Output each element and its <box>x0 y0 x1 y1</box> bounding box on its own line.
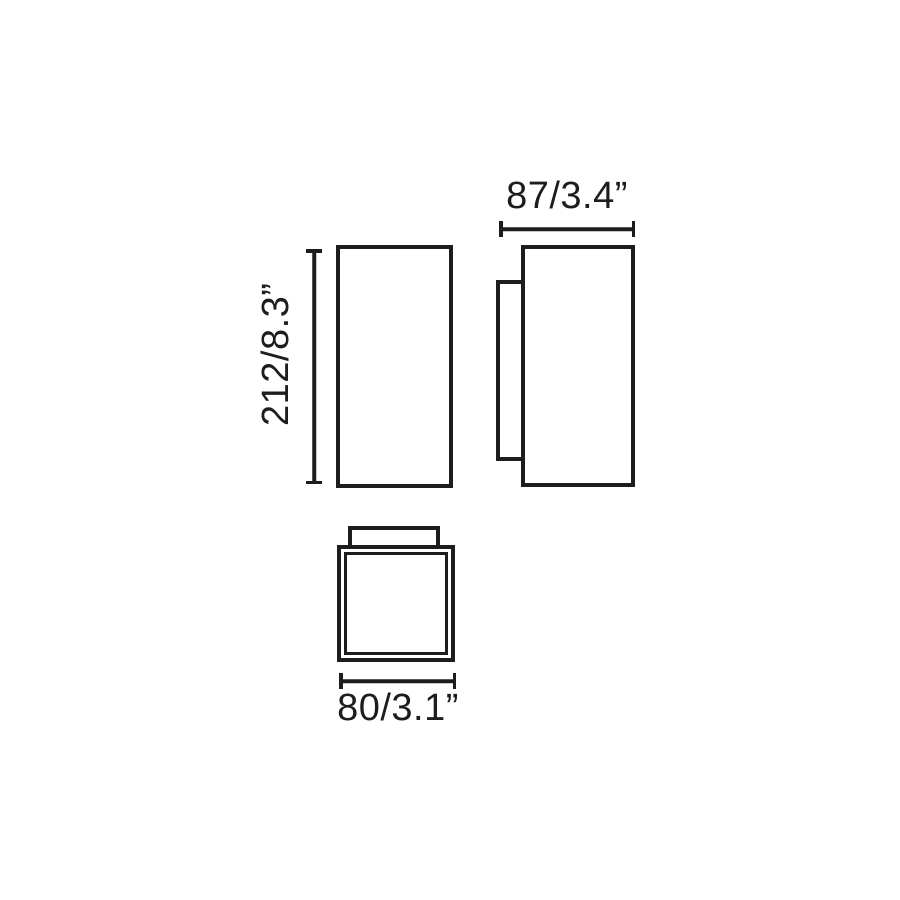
technical-drawing-canvas: 212/8.3” 87/3.4” 80/3.1” <box>0 0 900 900</box>
depth-dimension-label: 87/3.4” <box>482 175 652 217</box>
height-dimension-line <box>306 249 322 484</box>
depth-dimension-line <box>499 221 635 237</box>
height-dimension-stroke <box>312 249 316 484</box>
height-dimension-cap-bottom <box>306 481 322 485</box>
width-dimension-label: 80/3.1” <box>313 687 483 729</box>
depth-dimension-stroke <box>499 227 635 231</box>
top-view-outer-square <box>337 545 455 662</box>
depth-dimension-cap-left <box>499 221 503 237</box>
depth-dimension-cap-right <box>632 221 636 237</box>
height-dimension-cap-top <box>306 249 322 253</box>
top-view-inner-square <box>344 552 448 655</box>
side-view-body <box>521 245 635 487</box>
front-view-outline <box>336 245 453 488</box>
width-dimension-stroke <box>339 679 456 683</box>
height-dimension-label: 212/8.3” <box>255 286 297 426</box>
